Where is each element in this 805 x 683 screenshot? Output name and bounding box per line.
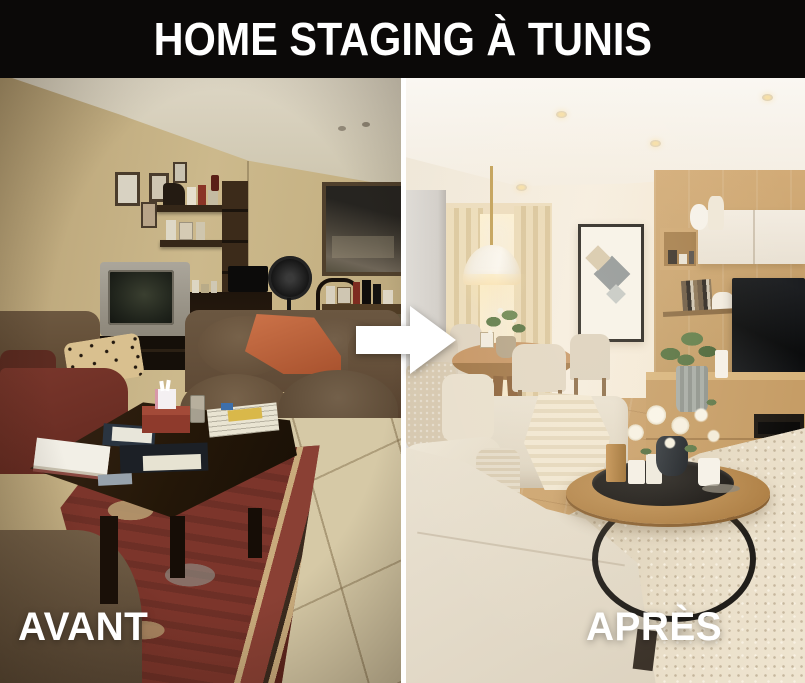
picture-frame	[173, 162, 187, 183]
flat-screen-tv	[732, 278, 805, 386]
shelf-clutter	[166, 218, 218, 240]
cubby-decor	[668, 246, 694, 264]
sideboard-clutter	[326, 277, 401, 304]
remote-control	[221, 403, 233, 410]
ceiling-light	[338, 126, 346, 131]
wall-shelf	[160, 240, 223, 247]
picture-frame	[115, 172, 140, 206]
white-vase	[690, 204, 708, 230]
red-box	[142, 406, 190, 433]
recessed-spotlight	[516, 184, 527, 191]
wall-mirror	[322, 182, 401, 276]
standing-fan	[268, 256, 312, 300]
before-after-graphic: HOME STAGING À TUNIS	[0, 0, 805, 683]
abstract-wall-art	[578, 224, 644, 342]
after-photo: APRÈS	[406, 78, 805, 683]
bottle	[211, 175, 219, 191]
table-leg	[170, 516, 185, 578]
tissue-box	[155, 389, 176, 409]
before-photo: AVANT	[0, 78, 401, 683]
open-paper	[143, 454, 201, 471]
candle	[715, 350, 728, 378]
cd-case	[98, 473, 133, 486]
before-label: AVANT	[18, 607, 148, 647]
page-title: HOME STAGING À TUNIS	[153, 12, 651, 66]
arrow-right-icon	[356, 306, 456, 374]
photo-divider	[401, 78, 406, 683]
recessed-spotlight	[650, 140, 661, 147]
picture-frame	[141, 202, 157, 228]
after-label: APRÈS	[586, 607, 722, 647]
white-flower-bouquet	[620, 394, 724, 464]
recessed-spotlight	[556, 111, 567, 118]
white-mug	[698, 458, 720, 486]
cabinet-divider	[753, 210, 755, 264]
wall-shelf	[157, 205, 227, 212]
tv-screen	[108, 270, 174, 325]
dining-chair	[570, 334, 610, 380]
glass-jar	[190, 395, 205, 423]
dining-chair	[512, 344, 566, 392]
mirror-reflection	[332, 236, 394, 258]
header-bar: HOME STAGING À TUNIS	[0, 0, 805, 78]
desk-clutter	[192, 279, 232, 293]
table-leg	[100, 516, 118, 604]
beige-pillow	[442, 374, 494, 442]
ceiling-light	[362, 122, 370, 127]
pendant-rod	[490, 166, 493, 248]
tall-vase	[708, 196, 724, 230]
recessed-spotlight	[762, 94, 773, 101]
black-monitor	[228, 266, 268, 292]
table-leg	[248, 508, 262, 558]
coaster	[702, 484, 740, 493]
books-on-shelf	[681, 279, 713, 313]
